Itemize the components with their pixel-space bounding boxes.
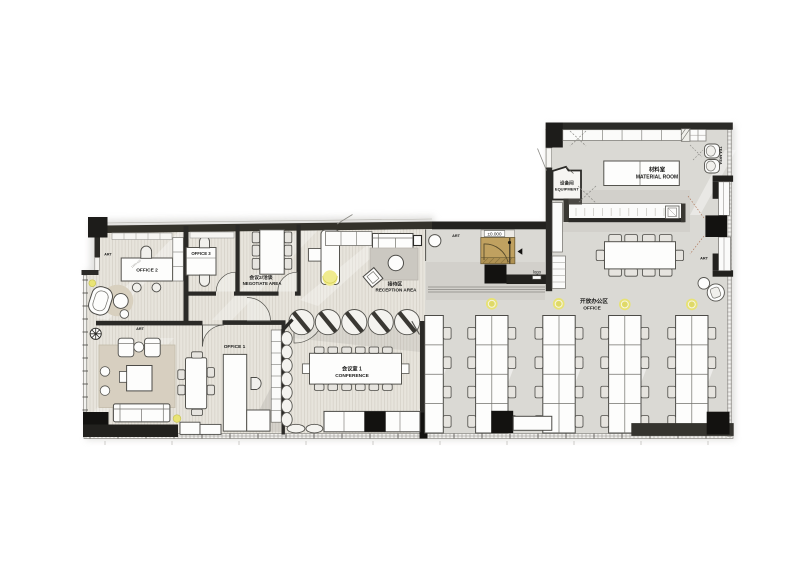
svg-text:±0.000: ±0.000 [487, 232, 501, 237]
svg-text:ART: ART [452, 234, 460, 238]
svg-text:ART: ART [136, 327, 144, 331]
svg-text:OFFICE 2: OFFICE 2 [136, 268, 158, 274]
svg-text:接待区: 接待区 [388, 281, 403, 288]
svg-text:OFFICE 1: OFFICE 1 [224, 344, 246, 350]
svg-text:ART: ART [700, 257, 708, 261]
svg-text:OFFICE: OFFICE [583, 305, 601, 311]
svg-text:NEGOTIATE AREA: NEGOTIATE AREA [243, 281, 283, 286]
svg-text:EQUIPMENT: EQUIPMENT [555, 187, 579, 192]
svg-text:logo: logo [533, 269, 542, 274]
svg-text:RECEPTION AREA: RECEPTION AREA [376, 288, 418, 293]
svg-text:设备间: 设备间 [560, 180, 574, 187]
svg-text:材料室: 材料室 [648, 166, 666, 174]
svg-text:OFFICE 3: OFFICE 3 [191, 251, 211, 256]
svg-text:ART: ART [104, 253, 112, 257]
svg-text:TEA AREA: TEA AREA [718, 147, 722, 166]
svg-text:MATERIAL ROOM: MATERIAL ROOM [636, 175, 678, 181]
svg-text:CONFERENCE: CONFERENCE [335, 373, 369, 379]
svg-text:开放办公区: 开放办公区 [580, 297, 608, 305]
svg-text:会议室 1: 会议室 1 [342, 365, 362, 373]
